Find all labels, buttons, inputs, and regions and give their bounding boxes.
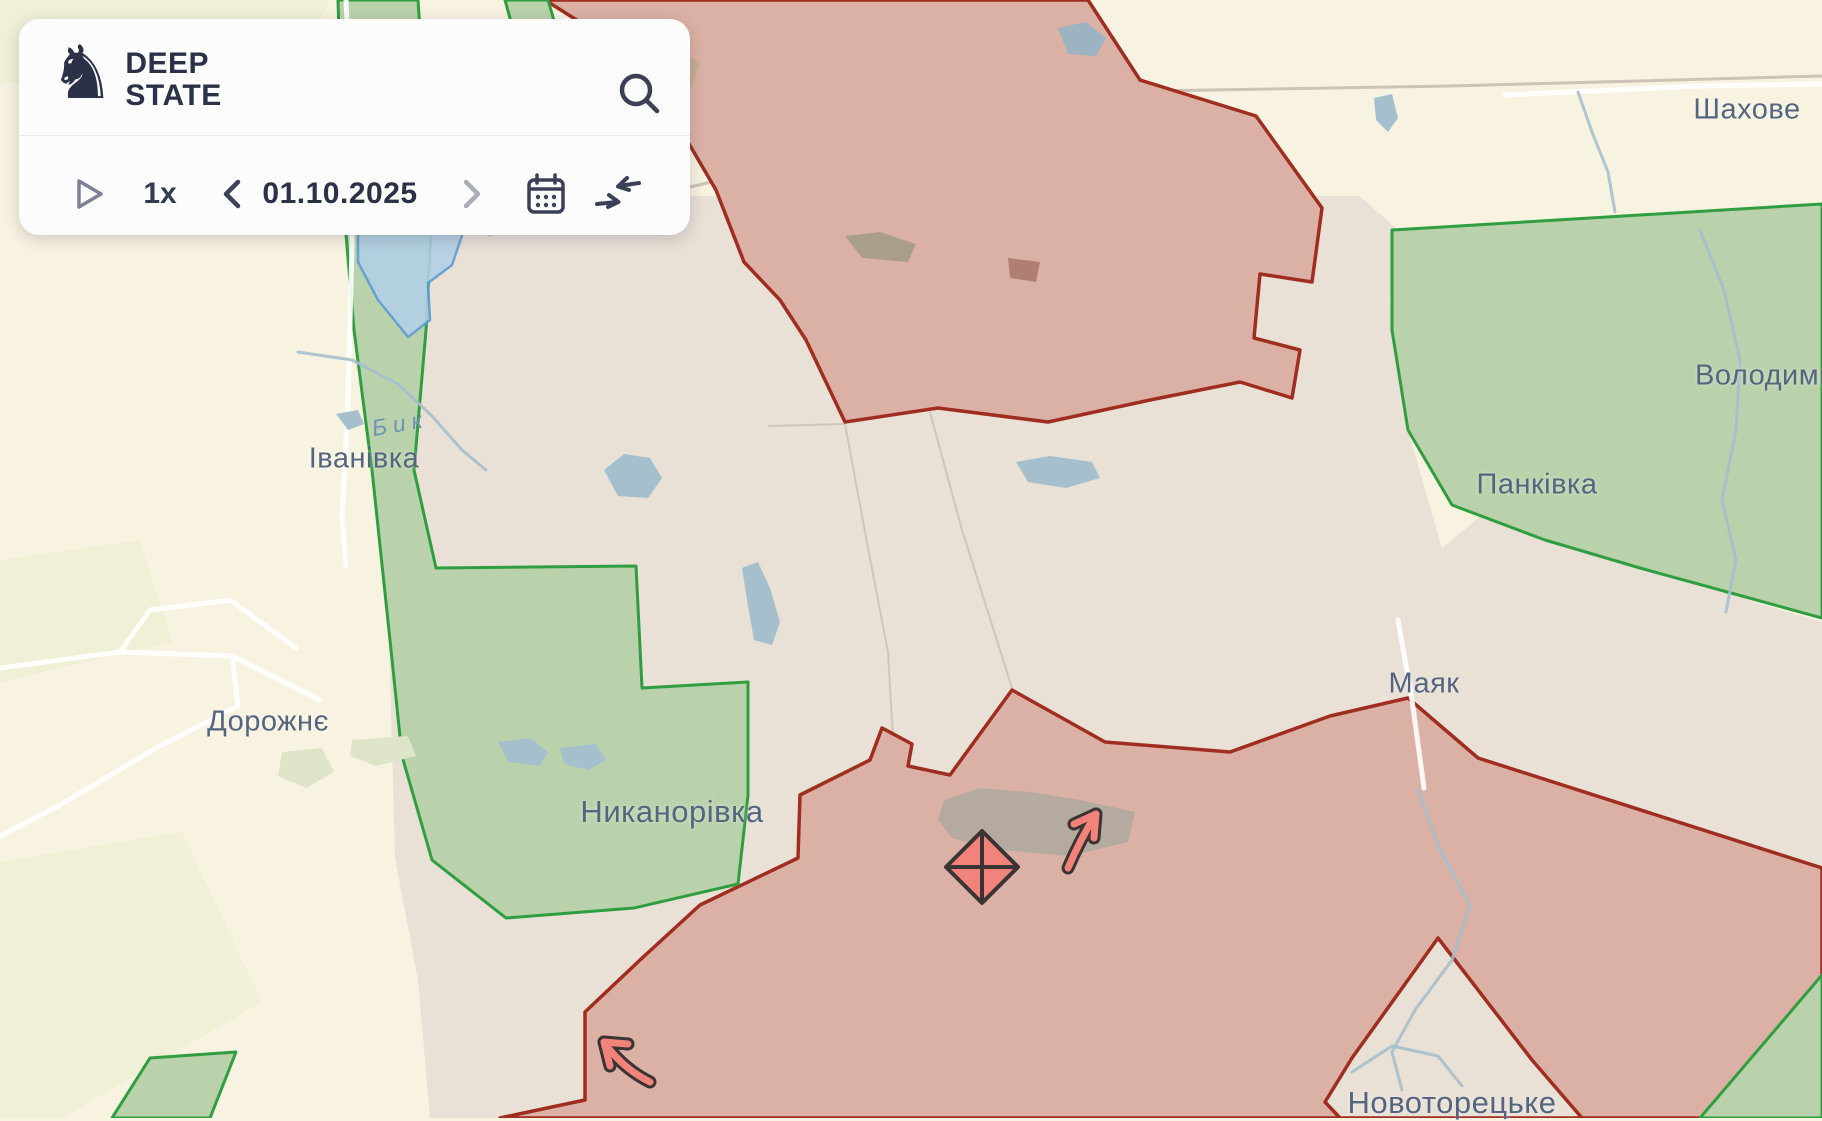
deepstate-map-app: { "panel": { "brand": {"line1": "DEEP", … xyxy=(0,0,1822,1118)
play-button[interactable] xyxy=(75,177,105,211)
settlement-footprint xyxy=(1008,258,1040,282)
converge-arrows-icon xyxy=(594,174,642,214)
chevron-right-icon xyxy=(460,177,484,211)
panel-header-row: ♞ DEEP STATE xyxy=(19,19,690,135)
previous-date-button[interactable] xyxy=(220,177,244,211)
knight-logo-icon: ♞ xyxy=(49,21,115,125)
search-icon xyxy=(615,69,663,117)
panel-timeline-row: 1x 01.10.2025 xyxy=(19,136,690,235)
search-button[interactable] xyxy=(615,69,663,117)
calendar-button[interactable] xyxy=(525,172,567,216)
next-date-button[interactable] xyxy=(460,177,484,211)
collapse-timeline-button[interactable] xyxy=(594,174,642,214)
chevron-left-icon xyxy=(220,177,244,211)
date-display[interactable]: 01.10.2025 xyxy=(262,177,417,211)
calendar-icon xyxy=(525,172,567,216)
control-panel: ♞ DEEP STATE 1x 01.10.2025 xyxy=(19,19,690,235)
play-icon xyxy=(75,177,105,211)
playback-speed-button[interactable]: 1x xyxy=(143,177,176,211)
deepstate-logo: ♞ DEEP STATE xyxy=(49,21,222,125)
brand-name: DEEP STATE xyxy=(125,48,221,112)
